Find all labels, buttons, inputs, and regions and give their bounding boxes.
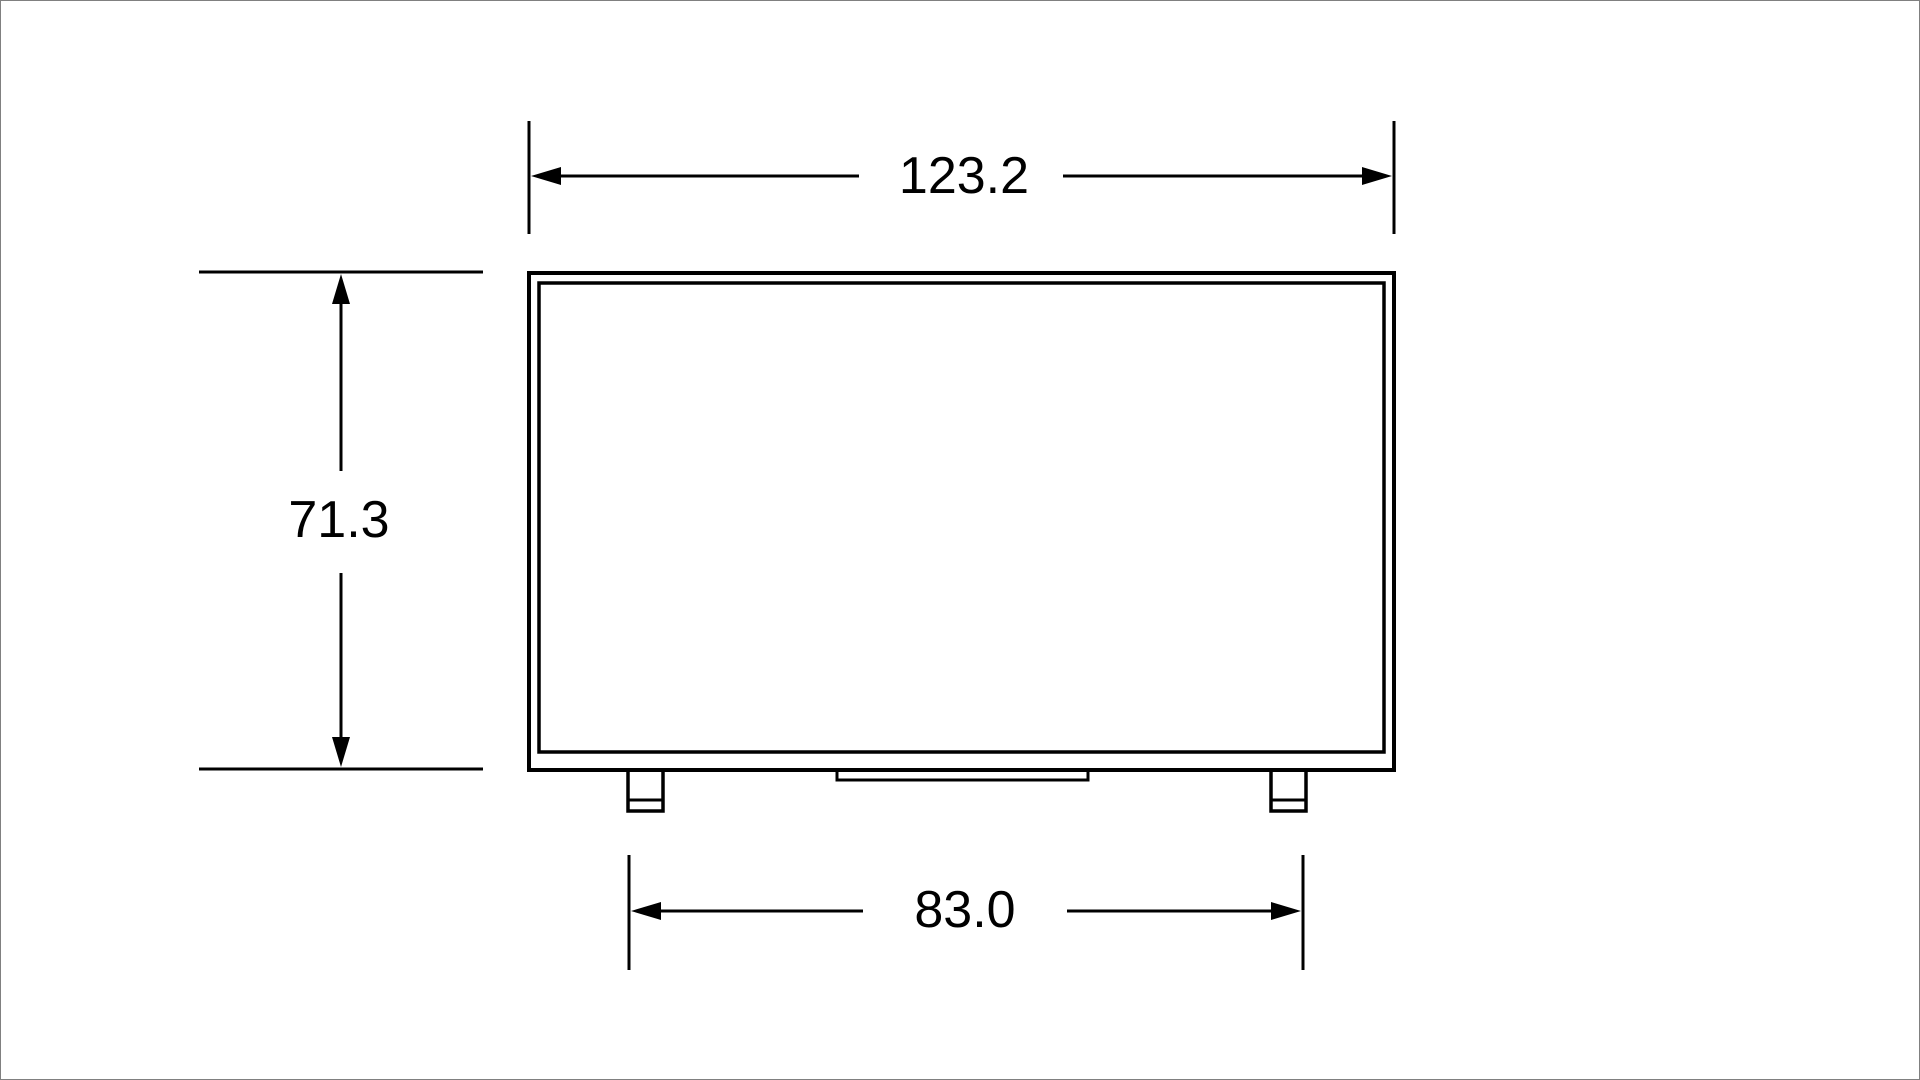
- tv-outer-bezel-outline: [529, 273, 1394, 770]
- width-arrowhead-right-icon: [1362, 167, 1392, 185]
- width-dimension: 123.2: [529, 121, 1394, 234]
- stand-width-dimension: 83.0: [629, 855, 1303, 970]
- dimension-drawing-canvas: 123.2 71.3 83.0: [0, 0, 1920, 1080]
- width-arrowhead-left-icon: [531, 167, 561, 185]
- tv-right-foot: [1271, 770, 1306, 811]
- tv-outline-group: [529, 273, 1394, 811]
- tv-dimension-diagram: 123.2 71.3 83.0: [1, 1, 1920, 1080]
- stand-width-arrowhead-left-icon: [631, 902, 661, 920]
- tv-left-foot: [628, 770, 663, 811]
- width-dimension-label: 123.2: [899, 147, 1029, 205]
- tv-screen-outline: [539, 283, 1384, 752]
- stand-width-arrowhead-right-icon: [1271, 902, 1301, 920]
- height-dimension-label: 71.3: [288, 491, 389, 549]
- stand-width-dimension-label: 83.0: [914, 881, 1015, 939]
- height-arrowhead-up-icon: [332, 274, 350, 304]
- height-dimension: 71.3: [199, 272, 483, 769]
- height-arrowhead-down-icon: [332, 737, 350, 767]
- tv-bottom-connector-bar: [837, 770, 1088, 780]
